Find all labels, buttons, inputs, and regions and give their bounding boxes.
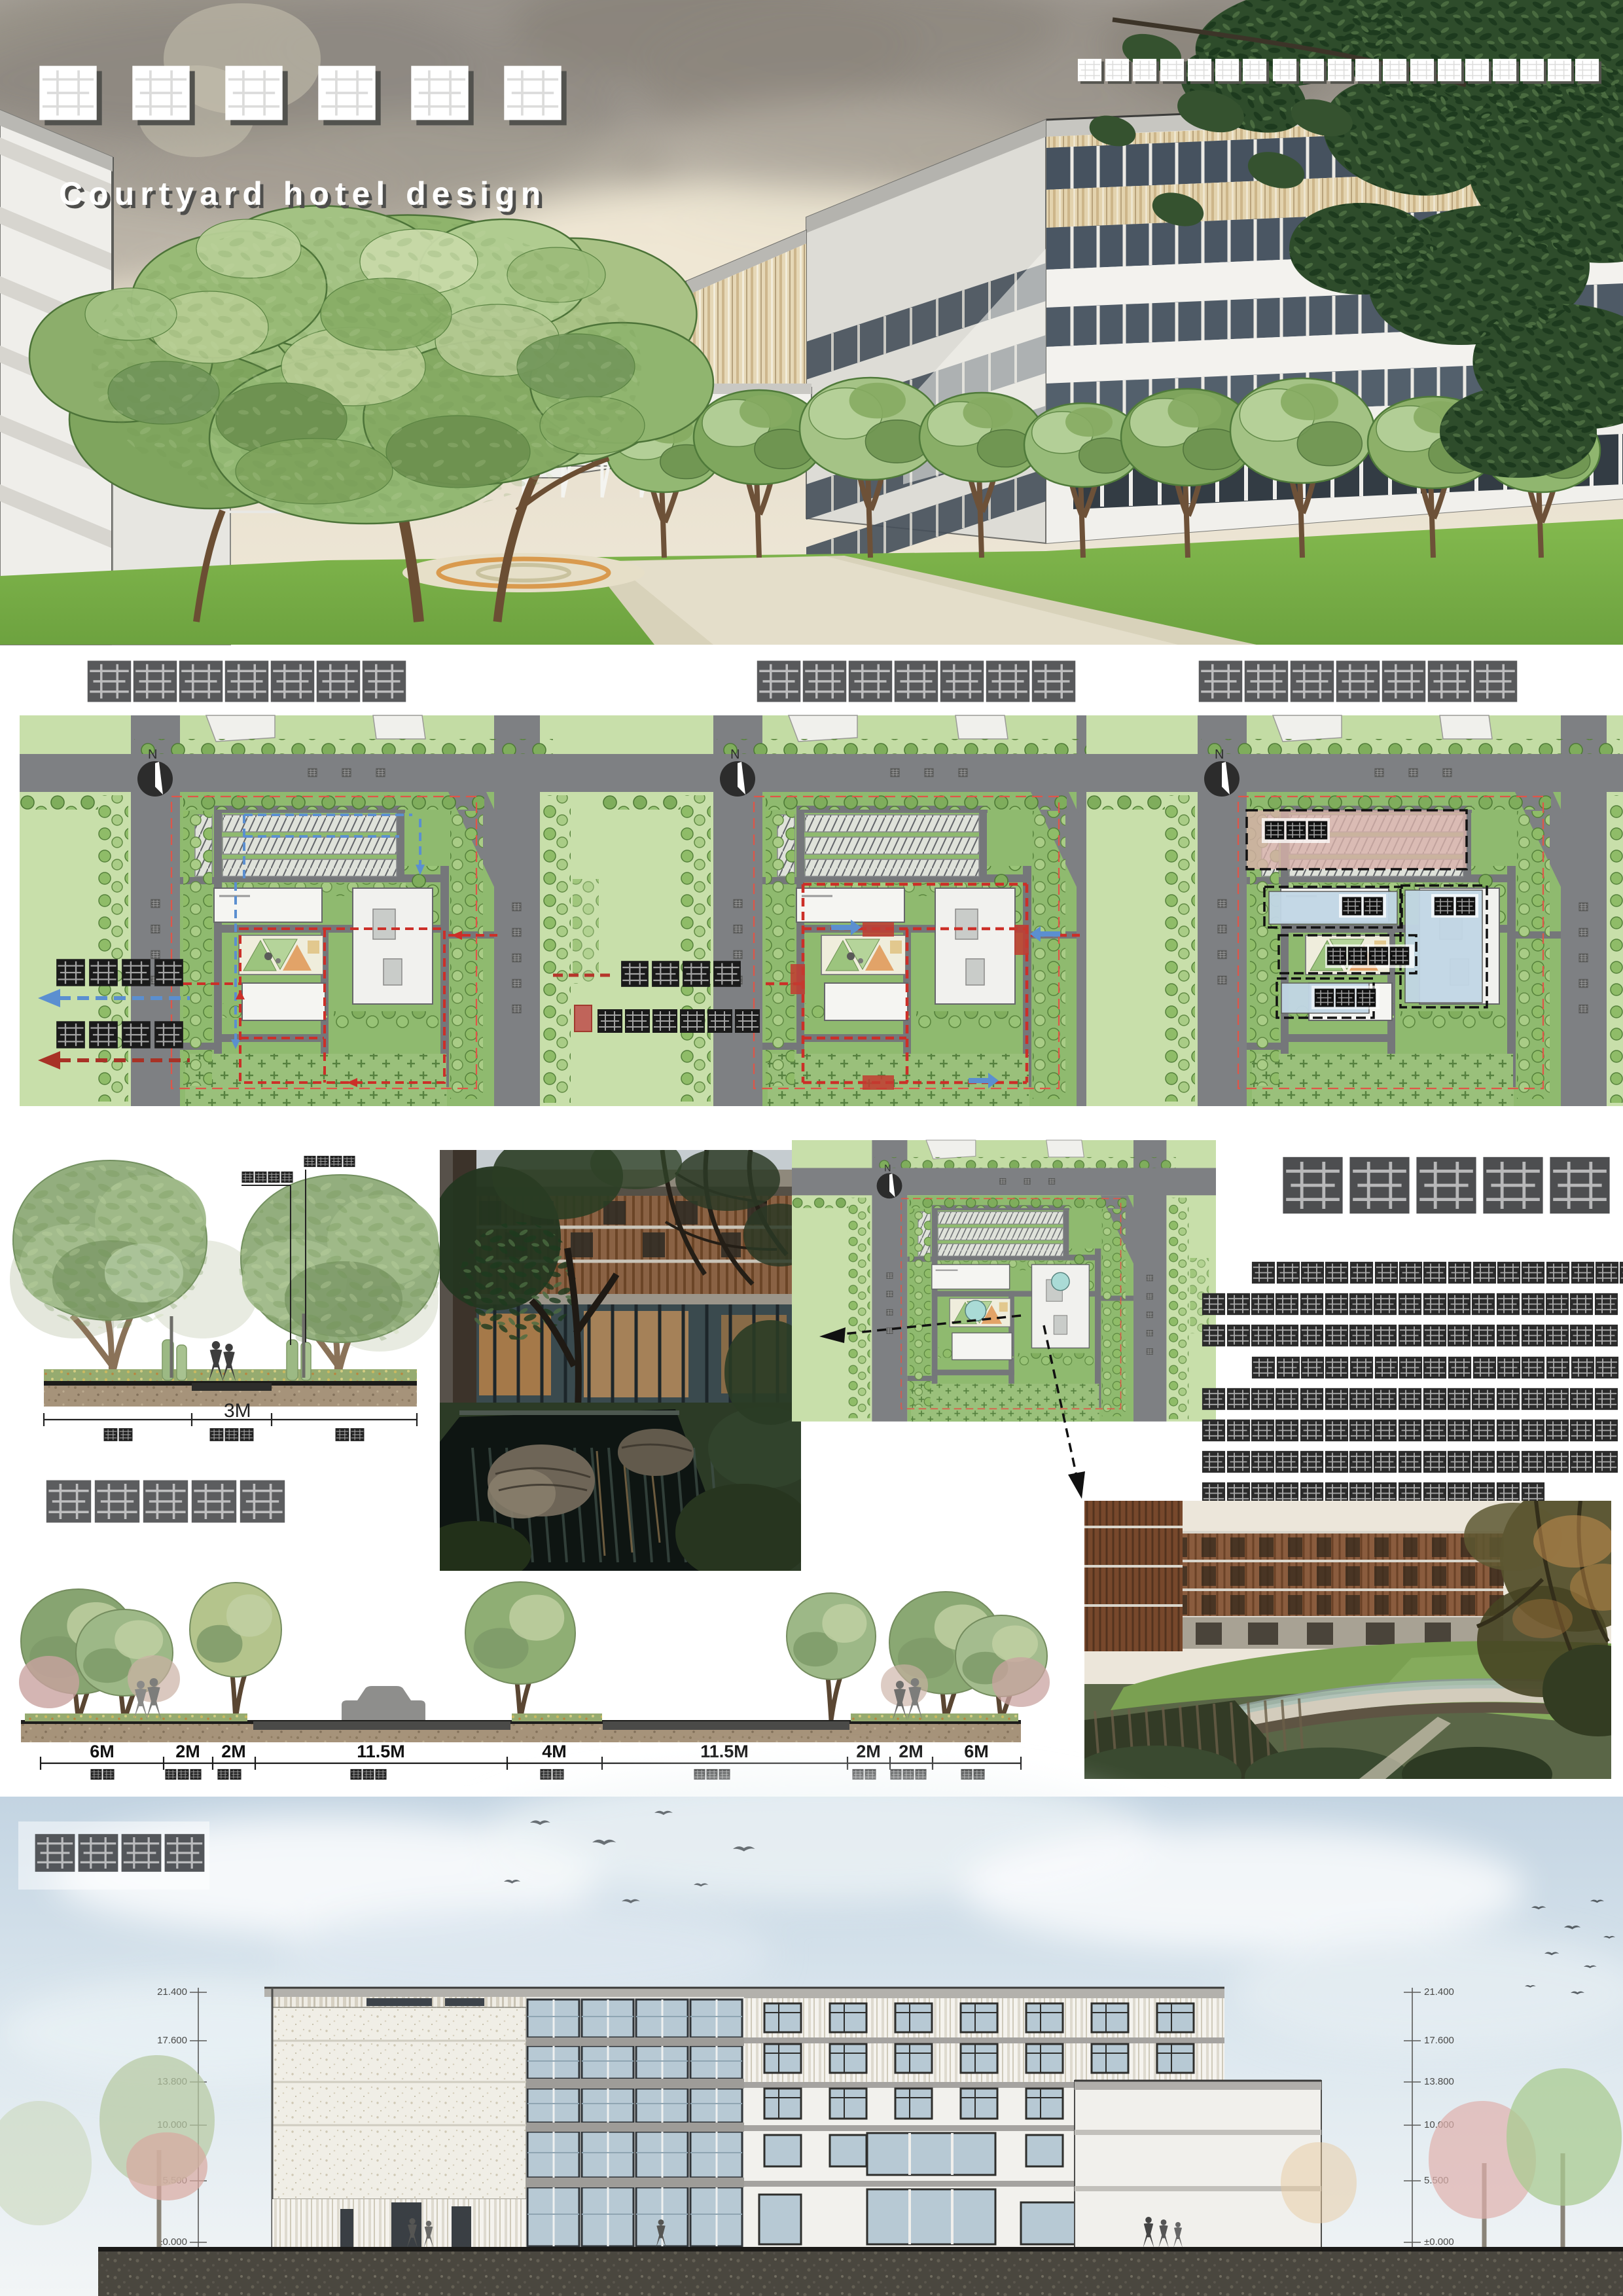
svg-text:13.800: 13.800 bbox=[1424, 2076, 1454, 2087]
svg-text:21.400: 21.400 bbox=[157, 1986, 187, 1998]
svg-text:2M: 2M bbox=[856, 1742, 881, 1761]
svg-text:6M: 6M bbox=[90, 1742, 115, 1761]
svg-text:Courtyard hotel design: Courtyard hotel design bbox=[59, 175, 546, 212]
svg-text:2M: 2M bbox=[221, 1742, 246, 1761]
svg-text:6M: 6M bbox=[964, 1742, 989, 1761]
svg-text:21.400: 21.400 bbox=[1424, 1986, 1454, 1998]
svg-text:3M: 3M bbox=[224, 1400, 251, 1422]
svg-text:±0.000: ±0.000 bbox=[157, 2236, 187, 2248]
svg-text:4M: 4M bbox=[542, 1742, 567, 1761]
svg-text:17.600: 17.600 bbox=[1424, 2035, 1454, 2046]
svg-text:11.5M: 11.5M bbox=[357, 1742, 405, 1761]
svg-text:11.5M: 11.5M bbox=[700, 1742, 749, 1761]
svg-text:17.600: 17.600 bbox=[157, 2035, 187, 2046]
svg-text:2M: 2M bbox=[175, 1742, 200, 1761]
svg-text:2M: 2M bbox=[899, 1742, 923, 1761]
svg-text:±0.000: ±0.000 bbox=[1424, 2236, 1454, 2248]
